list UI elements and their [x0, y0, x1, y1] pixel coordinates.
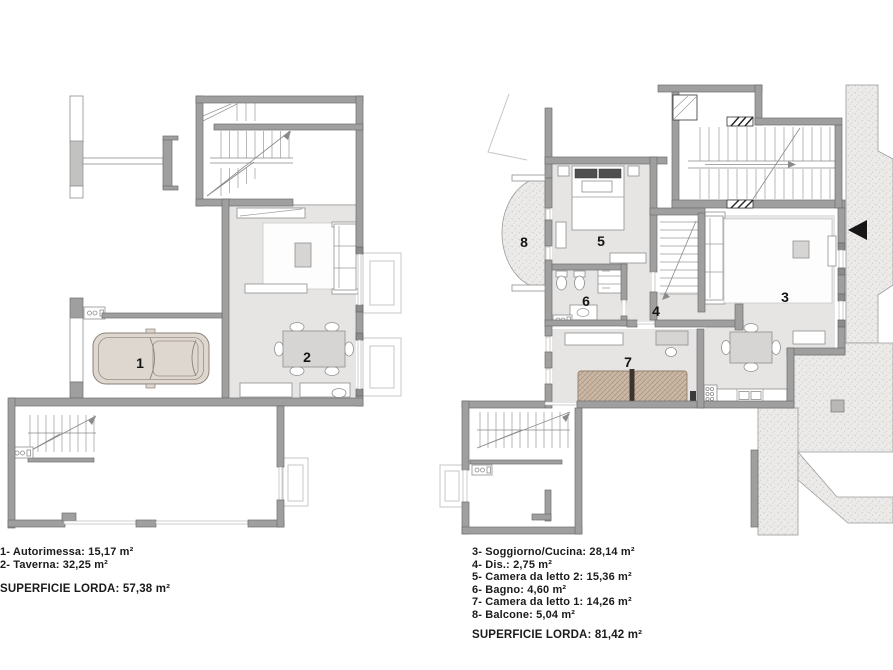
- stairwell: [688, 127, 835, 199]
- legend-item-dis: 4- Dis.: 2,75 m²: [472, 559, 642, 572]
- basement-stairs-upper: [203, 103, 293, 196]
- taverna-sideboard: [237, 208, 305, 218]
- legend-item-bagno: 6- Bagno: 4,60 m²: [472, 584, 642, 597]
- apartment-window-bay: [440, 465, 464, 507]
- room-label-2: 2: [303, 349, 311, 365]
- room-label-6: 6: [582, 293, 590, 309]
- balcony-floor: [502, 177, 545, 289]
- overhang-outline: [488, 94, 527, 160]
- taverna-stool: [332, 389, 346, 398]
- living-tv-unit: [828, 236, 836, 266]
- taverna-cabinet-1: [240, 383, 292, 397]
- internal-stair: [660, 221, 698, 300]
- taverna-coffee-table: [295, 243, 311, 267]
- room-label-3: 3: [781, 289, 789, 305]
- apartment-total-area: SUPERFICIE LORDA: 81,42 m²: [472, 629, 642, 641]
- basement-plan: 1 2: [8, 96, 401, 528]
- floorplan-page: 1 2: [0, 0, 893, 670]
- bedroom2-wardrobe: [556, 222, 566, 248]
- basement-total-area: SUPERFICIE LORDA: 57,38 m²: [0, 583, 170, 595]
- legend-item-camera1: 7- Camera da letto 1: 14,26 m²: [472, 596, 642, 609]
- basement-legend: 1- Autorimessa: 15,17 m² 2- Taverna: 32,…: [0, 546, 170, 595]
- bedroom1-beds: [578, 369, 696, 405]
- bedroom1-wardrobe: [565, 333, 623, 345]
- apartment-legend: 3- Soggiorno/Cucina: 28,14 m² 4- Dis.: 2…: [472, 546, 642, 641]
- living-sideboard: [793, 331, 825, 344]
- room-label-5: 5: [597, 233, 605, 249]
- living-rug: [724, 219, 832, 303]
- taverna-sofa: [332, 222, 358, 294]
- car: [93, 329, 209, 388]
- room-label-8: 8: [520, 234, 528, 250]
- legend-item-camera2: 5- Camera da letto 2: 15,36 m²: [472, 571, 642, 584]
- living-sofa: [703, 212, 725, 304]
- room-label-4: 4: [652, 303, 660, 319]
- living-pouf: [793, 241, 809, 258]
- taverna-bench: [245, 284, 307, 293]
- legend-item-taverna: 2- Taverna: 32,25 m²: [0, 559, 170, 572]
- legend-item-soggiorno: 3- Soggiorno/Cucina: 28,14 m²: [472, 546, 642, 559]
- legend-item-balcone: 8- Balcone: 5,04 m²: [472, 609, 642, 622]
- apartment-plan: 3 4 5 6 7 8: [440, 85, 893, 535]
- basement-stairs-lower: [28, 415, 96, 462]
- lower-meter-box: [472, 465, 492, 475]
- legend-item-autorimessa: 1- Autorimessa: 15,17 m²: [0, 546, 170, 559]
- terrace-planter: [831, 400, 844, 412]
- room-label-7: 7: [624, 354, 632, 370]
- room-label-1: 1: [136, 355, 144, 371]
- bedroom2-dresser: [610, 253, 646, 263]
